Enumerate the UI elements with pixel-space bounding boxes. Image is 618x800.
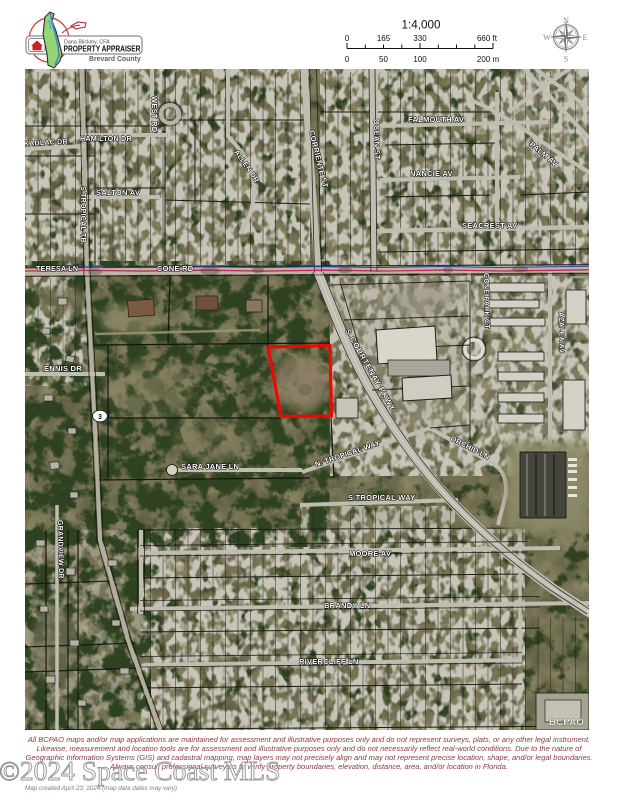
svg-text:200 m: 200 m [477, 55, 500, 64]
svg-text:BCPAO: BCPAO [549, 717, 584, 728]
svg-text:W: W [543, 33, 551, 42]
svg-text:All BCPAO maps and/or map appl: All BCPAO maps and/or map applications a… [27, 735, 590, 744]
svg-text:165: 165 [377, 34, 391, 43]
svg-text:RIVERCLIFF LN: RIVERCLIFF LN [299, 657, 359, 666]
svg-text:AZALEA AV: AZALEA AV [557, 312, 566, 354]
svg-text:1:4,000: 1:4,000 [402, 19, 441, 32]
svg-text:PROPERTY APPRAISER: PROPERTY APPRAISER [64, 44, 141, 54]
svg-text:OCEAN ST: OCEAN ST [372, 119, 382, 160]
svg-text:660 ft: 660 ft [477, 34, 498, 43]
svg-text:FALMOUTH AV: FALMOUTH AV [408, 115, 465, 124]
svg-text:N: N [563, 16, 569, 25]
svg-text:S: S [564, 55, 569, 64]
svg-text:CONE PARK CT: CONE PARK CT [482, 273, 491, 329]
svg-text:Likewise, measurement and loca: Likewise, measurement and location tools… [37, 744, 583, 753]
svg-text:E: E [582, 33, 587, 42]
svg-text:Brevard County: Brevard County [89, 56, 141, 63]
svg-text:GRANDVIEW DR: GRANDVIEW DR [56, 520, 65, 579]
svg-text:HAMILTON DR: HAMILTON DR [80, 134, 132, 143]
svg-text:ENNIS DR: ENNIS DR [44, 364, 82, 373]
svg-text:SEACREST AV: SEACREST AV [462, 221, 518, 230]
svg-text:0: 0 [345, 34, 350, 43]
svg-text:SARA JANE LN: SARA JANE LN [181, 462, 239, 471]
svg-text:NANCIE AV: NANCIE AV [410, 169, 453, 178]
svg-text:©2024 Space Coast MLS: ©2024 Space Coast MLS [0, 755, 280, 786]
svg-text:BRANDY LN: BRANDY LN [324, 601, 370, 610]
svg-text:50: 50 [379, 55, 388, 64]
svg-text:MOORE AV: MOORE AV [349, 549, 392, 558]
svg-text:WEST RD: WEST RD [150, 96, 159, 133]
svg-text:S TROPICAL WAY: S TROPICAL WAY [348, 493, 415, 502]
svg-text:TERESA LN: TERESA LN [36, 264, 78, 273]
svg-text:S TROPICAL TR: S TROPICAL TR [79, 186, 87, 243]
svg-text:0: 0 [345, 55, 350, 64]
svg-text:3: 3 [98, 414, 102, 421]
svg-text:Map created April 23, 2024 (ma: Map created April 23, 2024 (map data dat… [25, 785, 177, 792]
svg-text:100: 100 [413, 55, 427, 64]
svg-text:SALTON AV: SALTON AV [96, 188, 141, 197]
svg-text:330: 330 [413, 34, 427, 43]
svg-text:CONE RD: CONE RD [157, 264, 194, 273]
